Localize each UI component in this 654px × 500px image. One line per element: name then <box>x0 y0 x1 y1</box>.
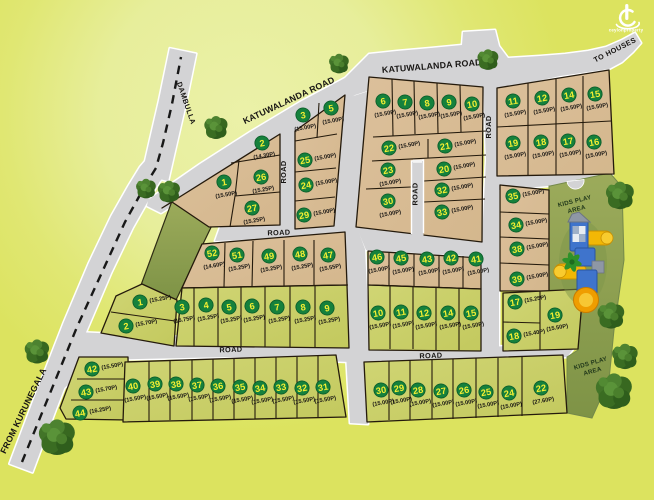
svg-text:22: 22 <box>535 383 547 395</box>
svg-text:16: 16 <box>588 137 600 149</box>
svg-text:42: 42 <box>86 364 98 376</box>
svg-text:37: 37 <box>191 380 203 392</box>
svg-text:18: 18 <box>535 137 547 149</box>
svg-text:46: 46 <box>371 252 383 264</box>
svg-text:28: 28 <box>412 385 424 397</box>
svg-text:30: 30 <box>375 385 387 397</box>
svg-text:43: 43 <box>421 254 433 266</box>
svg-text:35: 35 <box>507 191 519 203</box>
svg-text:27: 27 <box>246 203 258 215</box>
svg-text:ROAD: ROAD <box>484 115 493 138</box>
svg-text:33: 33 <box>275 382 287 394</box>
svg-text:ROAD: ROAD <box>411 182 420 205</box>
svg-text:29: 29 <box>393 383 405 395</box>
svg-text:25: 25 <box>299 155 311 167</box>
svg-text:19: 19 <box>549 310 561 322</box>
svg-text:38: 38 <box>511 244 523 256</box>
svg-text:49: 49 <box>263 251 275 263</box>
svg-text:51: 51 <box>231 250 243 262</box>
svg-text:32: 32 <box>436 185 448 197</box>
svg-text:41: 41 <box>470 254 482 266</box>
svg-text:45: 45 <box>395 253 407 265</box>
svg-text:42: 42 <box>445 253 457 265</box>
svg-text:36: 36 <box>212 381 224 393</box>
svg-text:25: 25 <box>480 387 492 399</box>
svg-text:32: 32 <box>296 383 308 395</box>
svg-text:38: 38 <box>170 379 182 391</box>
svg-text:23: 23 <box>382 165 394 177</box>
svg-text:52: 52 <box>206 248 218 260</box>
svg-text:ROAD: ROAD <box>279 160 288 183</box>
svg-text:26: 26 <box>255 172 267 184</box>
svg-text:39: 39 <box>149 379 161 391</box>
svg-text:ceylonproperty: ceylonproperty <box>609 28 644 33</box>
svg-text:39: 39 <box>511 274 523 286</box>
svg-text:10: 10 <box>372 308 384 320</box>
svg-text:21: 21 <box>439 141 451 153</box>
svg-text:17: 17 <box>562 136 574 148</box>
svg-text:33: 33 <box>436 207 448 219</box>
svg-text:30: 30 <box>382 196 394 208</box>
svg-text:31: 31 <box>317 382 329 394</box>
svg-text:35: 35 <box>234 382 246 394</box>
svg-text:22: 22 <box>383 143 395 155</box>
svg-text:47: 47 <box>322 250 334 262</box>
svg-text:ROAD: ROAD <box>267 228 290 238</box>
svg-text:18: 18 <box>508 331 520 343</box>
svg-text:26: 26 <box>458 385 470 397</box>
svg-text:17: 17 <box>509 297 521 309</box>
svg-text:48: 48 <box>294 249 306 261</box>
svg-text:40: 40 <box>127 381 139 393</box>
svg-text:15: 15 <box>465 308 477 320</box>
svg-text:29: 29 <box>298 210 310 222</box>
svg-text:20: 20 <box>438 164 450 176</box>
svg-text:12: 12 <box>536 93 548 105</box>
svg-text:11: 11 <box>395 307 406 319</box>
svg-text:19: 19 <box>507 138 519 150</box>
svg-text:15: 15 <box>589 89 601 101</box>
svg-text:10: 10 <box>466 99 478 111</box>
svg-text:12: 12 <box>418 308 430 320</box>
svg-text:43: 43 <box>80 387 92 399</box>
svg-text:ROAD: ROAD <box>219 345 242 355</box>
svg-text:ROAD: ROAD <box>419 351 442 361</box>
svg-text:11: 11 <box>507 96 518 108</box>
svg-text:27: 27 <box>435 386 447 398</box>
